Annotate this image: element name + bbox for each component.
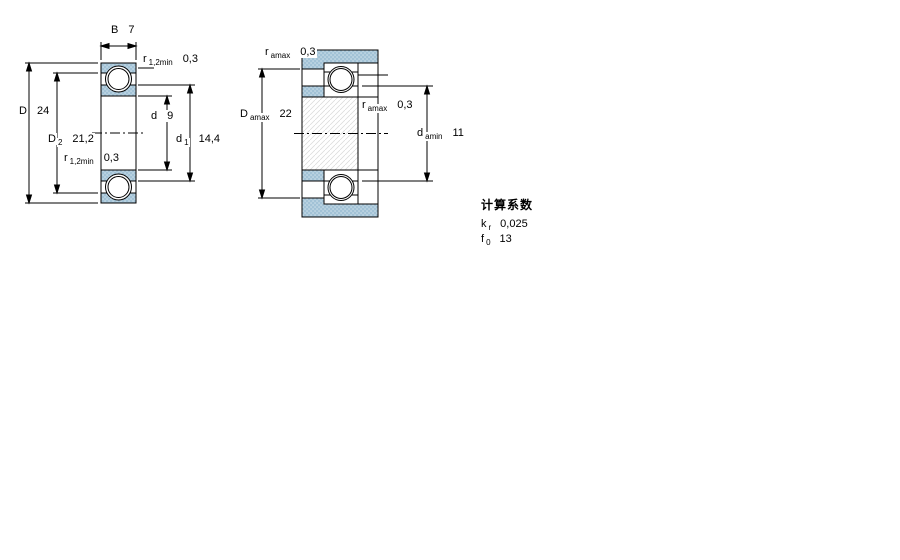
dim-D2-label: D221,2 <box>47 133 95 146</box>
dim-ramax-top-label: ramax0,3 <box>264 46 317 59</box>
dim-d-label: d9 <box>150 110 174 123</box>
dim-ramax-mid-label: ramax0,3 <box>361 99 414 112</box>
dim-B-lines <box>101 42 136 60</box>
ball <box>330 177 352 199</box>
view2-bearing-bottom <box>324 170 358 204</box>
factor-kr: kr0,025 <box>480 218 529 231</box>
dim-d-lines <box>138 96 172 170</box>
view2-bearing-top <box>324 63 358 97</box>
factor-f0: f013 <box>480 233 513 246</box>
ball-top <box>108 69 129 90</box>
view2-mounted-section <box>258 50 433 217</box>
shaft-shoulder-top <box>302 86 324 97</box>
dim-r12-top-label: r1,2min0,3 <box>142 53 199 66</box>
dim-Damax-label: Damax22 <box>239 108 293 121</box>
dim-damin-label: damin11 <box>416 127 465 140</box>
calc-factors-heading: 计算系数 <box>481 196 533 213</box>
ball-bottom <box>108 177 129 198</box>
dim-d1-label: d114,4 <box>175 133 221 146</box>
dim-Damax-lines <box>258 69 300 198</box>
technical-drawing-svg <box>0 0 900 560</box>
dim-B-label: B7 <box>110 24 135 37</box>
shaft-shoulder-bottom <box>302 170 324 181</box>
ball <box>330 69 352 91</box>
dim-r12-bottom-label: r1,2min0,3 <box>63 152 120 165</box>
bearing-drawing-page: B7 r1,2min0,3 D24 D221,2 r1,2min0,3 d9 d… <box>0 0 900 560</box>
dim-D-label: D24 <box>18 105 50 118</box>
